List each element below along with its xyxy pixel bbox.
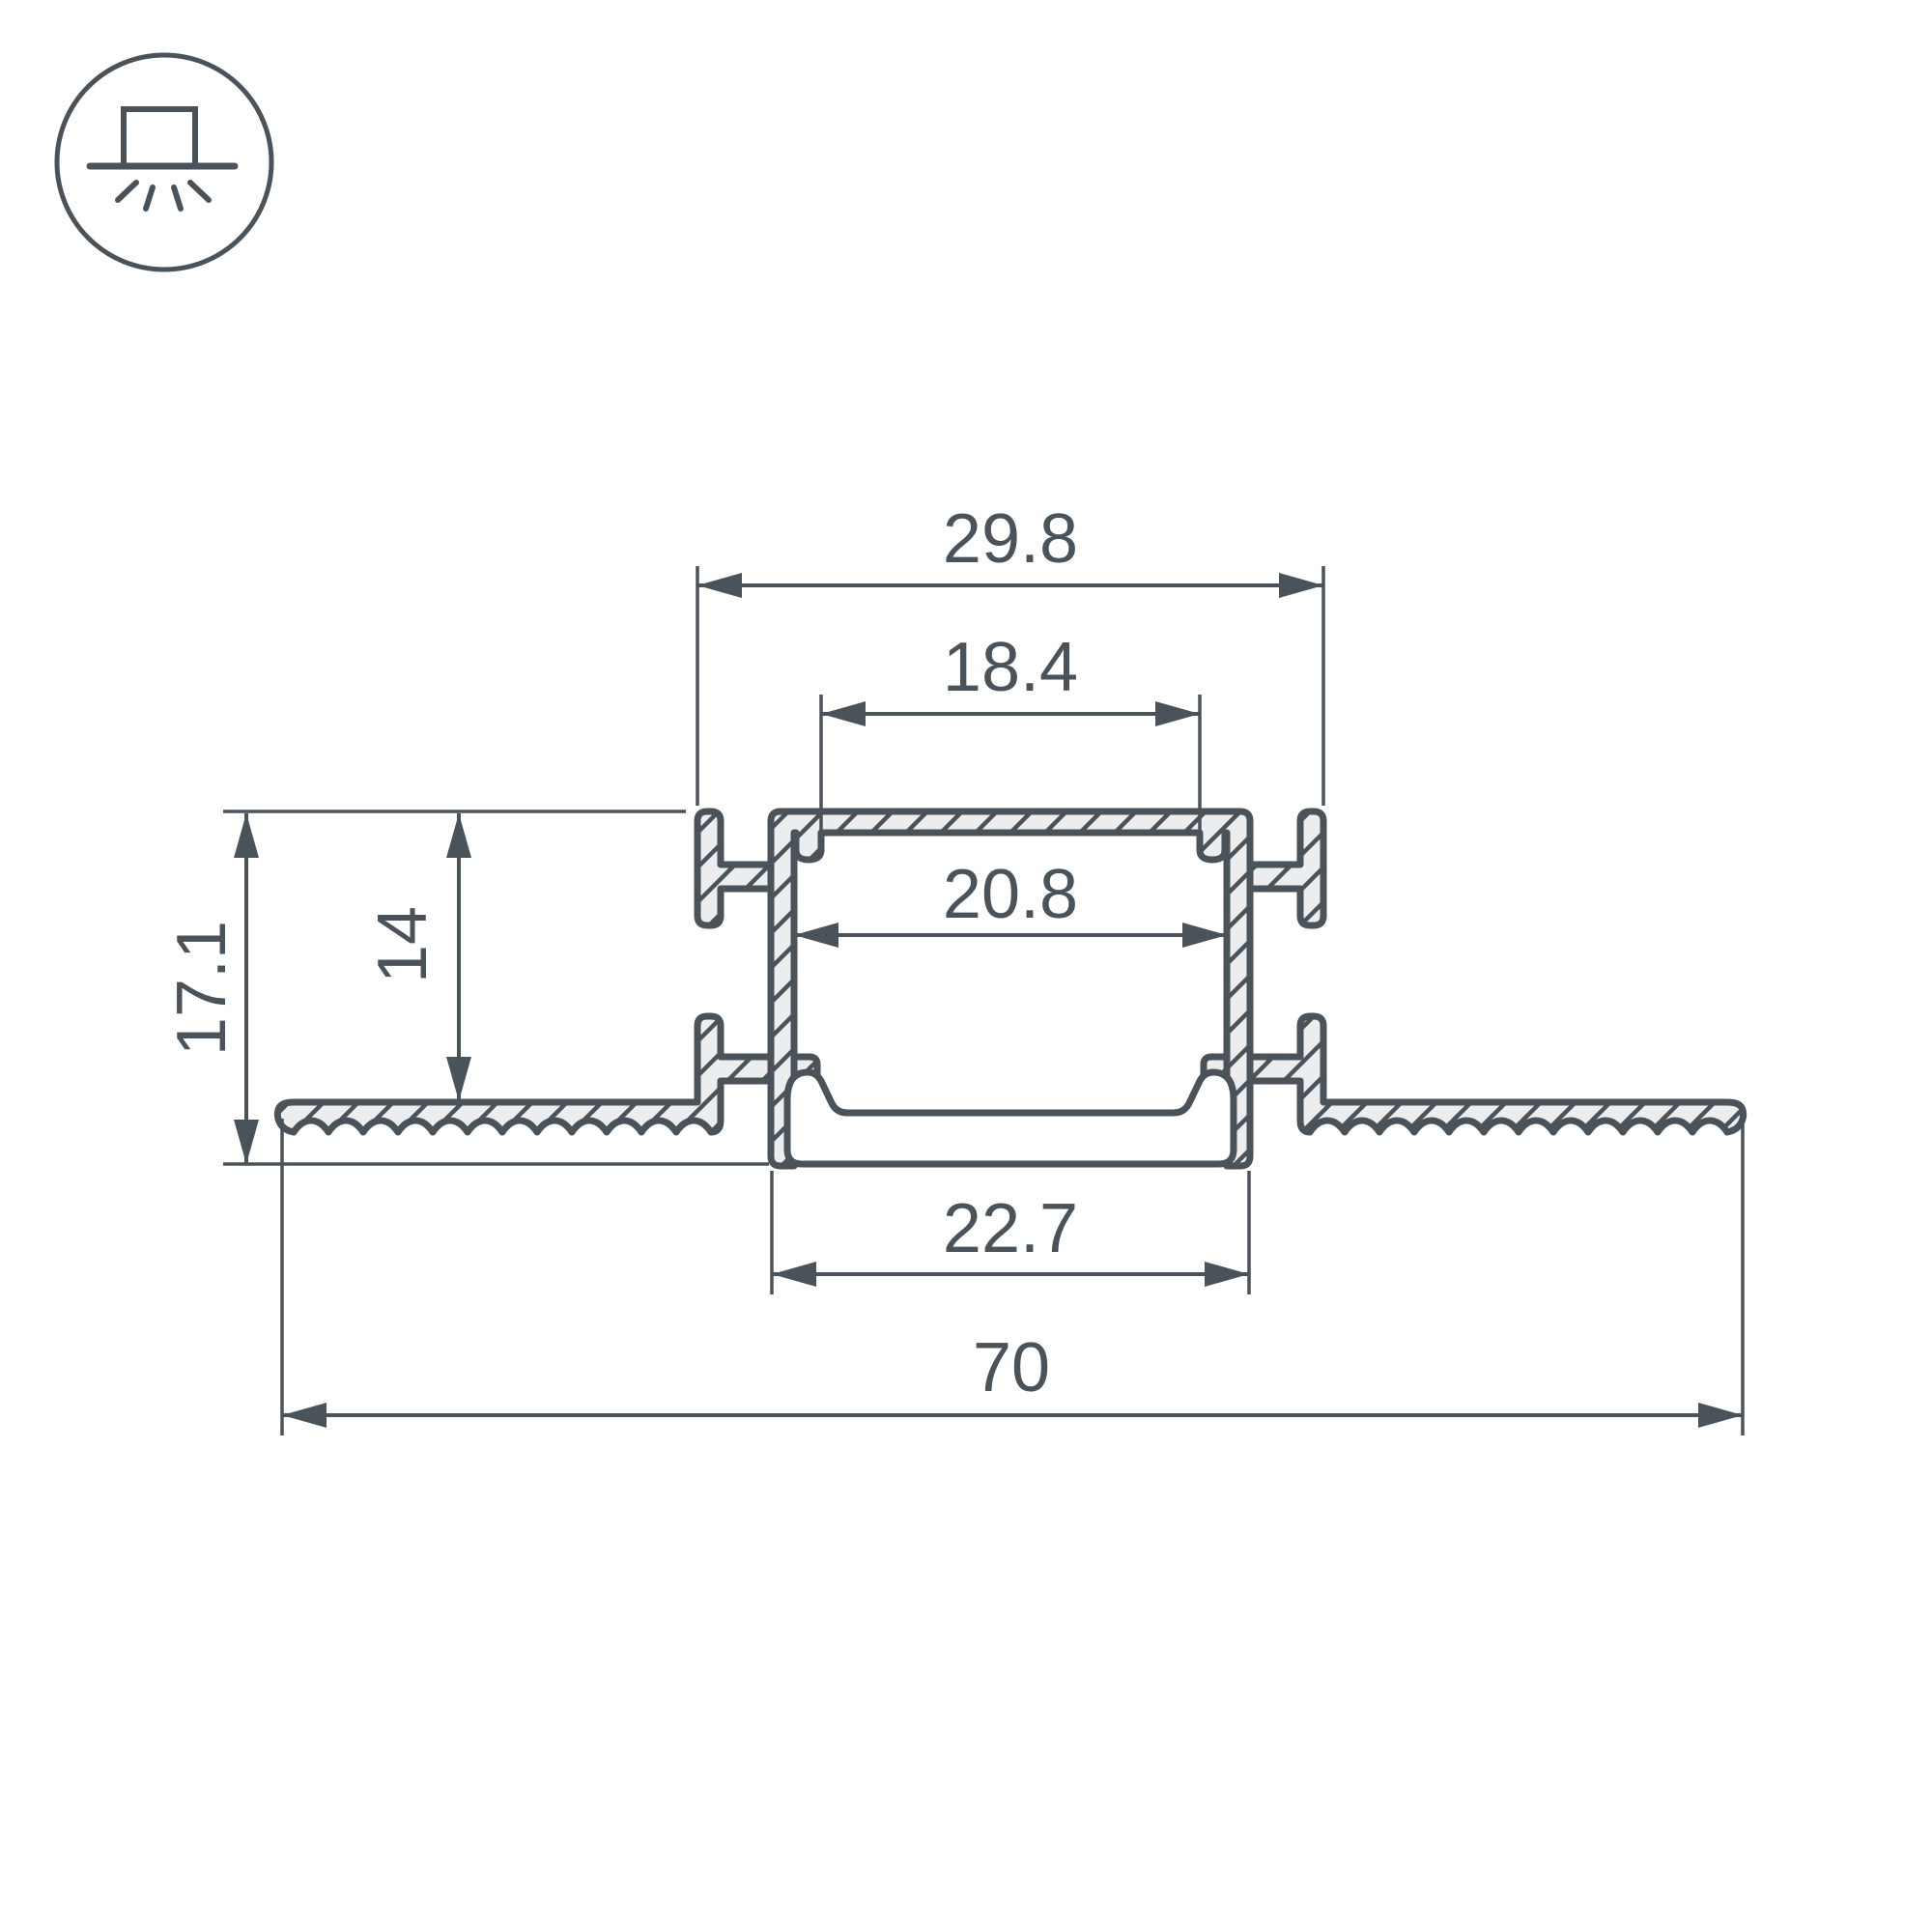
profile-cross-section-drawing: 29.8 18.4 20.8 22.7 — [0, 0, 1932, 1932]
dim-inner-width-label: 20.8 — [943, 856, 1078, 933]
dim-mount-depth-label: 14 — [364, 906, 441, 983]
dim-total-height-label: 17.1 — [163, 921, 241, 1056]
dim-total-width-label: 70 — [973, 1329, 1050, 1406]
canvas-background — [0, 0, 1932, 1932]
dim-bottom-width-label: 22.7 — [943, 1190, 1078, 1267]
dim-outer-width-label: 29.8 — [943, 500, 1078, 578]
dim-opening-width-label: 18.4 — [943, 629, 1078, 706]
